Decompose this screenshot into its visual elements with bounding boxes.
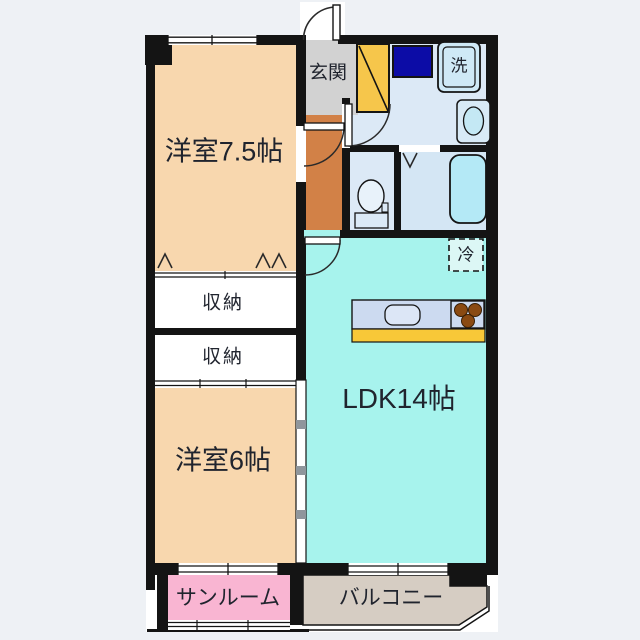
closet-door-line [155,271,296,279]
floorplan-canvas: 洋室7.5帖 玄関 洗 収納 収納 洋室6帖 LDK14帖 冷 サンルーム バル… [0,0,640,640]
label-bedroom-6: 洋室6帖 [175,448,271,475]
washbasin-icon [457,100,490,143]
door-arc-icon [345,104,390,146]
door-arc-icon [305,237,340,275]
kitchen-strip [352,329,485,342]
door-arc-icon [304,123,344,166]
bathtub-icon [450,155,486,223]
label-ldk: LDK14帖 [342,385,456,413]
linework-layer [0,0,640,640]
toilet-icon [355,180,388,228]
label-storage-lower: 収納 [202,348,244,367]
doorway-gap [296,126,306,182]
label-storage-upper: 収納 [202,294,244,313]
window [178,563,278,575]
closet-fold-icon [158,254,286,268]
label-washer: 洗 [451,58,468,75]
bath-fold-door-icon [403,153,417,167]
entrance-door-icon [304,5,341,40]
kitchen-counter [352,300,485,342]
label-sunroom: サンルーム [176,588,280,609]
label-balcony: バルコニー [339,588,444,609]
label-bedroom-7-5: 洋室7.5帖 [165,139,284,166]
label-entrance: 玄関 [309,64,347,83]
window [168,35,257,45]
shoe-cabinet-slash-icon [359,46,388,111]
window [168,620,290,630]
label-refrigerator: 冷 [458,247,475,264]
window [348,563,448,575]
sliding-door-line [155,379,296,388]
sliding-partition [296,380,306,563]
sink-icon [385,305,420,325]
doorway-gap [399,145,440,152]
